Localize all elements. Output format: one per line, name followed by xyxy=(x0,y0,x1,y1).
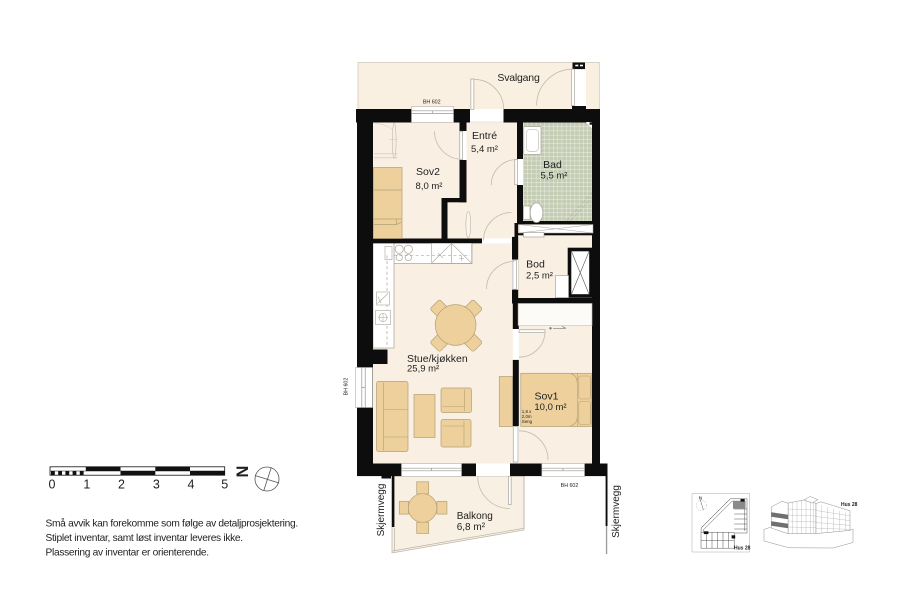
svg-text:Bod: Bod xyxy=(526,259,545,271)
svg-text:BH 602: BH 602 xyxy=(561,483,579,489)
svg-text:5,4 m²: 5,4 m² xyxy=(471,144,498,155)
svg-text:Stiplet inventar, samt løst in: Stiplet inventar, samt løst inventar lev… xyxy=(46,533,243,544)
svg-text:6,8 m²: 6,8 m² xyxy=(457,522,486,533)
svg-text:5,5 m²: 5,5 m² xyxy=(541,171,568,182)
svg-text:Hus 28: Hus 28 xyxy=(734,546,751,552)
svg-text:Bad: Bad xyxy=(543,159,562,171)
svg-text:1: 1 xyxy=(83,478,90,492)
svg-text:5: 5 xyxy=(221,478,228,492)
svg-text:3: 3 xyxy=(153,478,160,492)
svg-text:Svalgang: Svalgang xyxy=(497,72,540,84)
svg-text:4: 4 xyxy=(188,478,195,492)
svg-text:2: 2 xyxy=(118,478,125,492)
svg-text:25,9 m²: 25,9 m² xyxy=(407,363,439,374)
svg-text:8,0 m²: 8,0 m² xyxy=(416,181,443,192)
svg-text:Plassering av inventar er orie: Plassering av inventar er orienterende. xyxy=(46,548,209,559)
svg-text:Seng: Seng xyxy=(522,419,533,424)
svg-text:Sov1: Sov1 xyxy=(535,391,559,403)
svg-text:Balkong: Balkong xyxy=(457,511,493,522)
svg-text:Sov2: Sov2 xyxy=(416,166,440,178)
svg-text:2,5 m²: 2,5 m² xyxy=(526,271,553,282)
svg-text:N: N xyxy=(699,496,702,501)
svg-text:Skjermvegg: Skjermvegg xyxy=(611,485,622,538)
svg-text:BH 602: BH 602 xyxy=(423,100,441,106)
svg-text:Skjermvegg: Skjermvegg xyxy=(376,484,387,537)
svg-text:BH 602: BH 602 xyxy=(344,378,350,396)
svg-text:10,0 m²: 10,0 m² xyxy=(534,402,566,413)
svg-text:Entré: Entré xyxy=(472,130,497,142)
svg-text:Hus 28: Hus 28 xyxy=(841,502,858,508)
svg-text:N: N xyxy=(233,466,251,478)
svg-text:Små avvik kan forekomme som fø: Små avvik kan forekomme som følge av det… xyxy=(46,517,298,529)
svg-text:0: 0 xyxy=(49,478,56,492)
